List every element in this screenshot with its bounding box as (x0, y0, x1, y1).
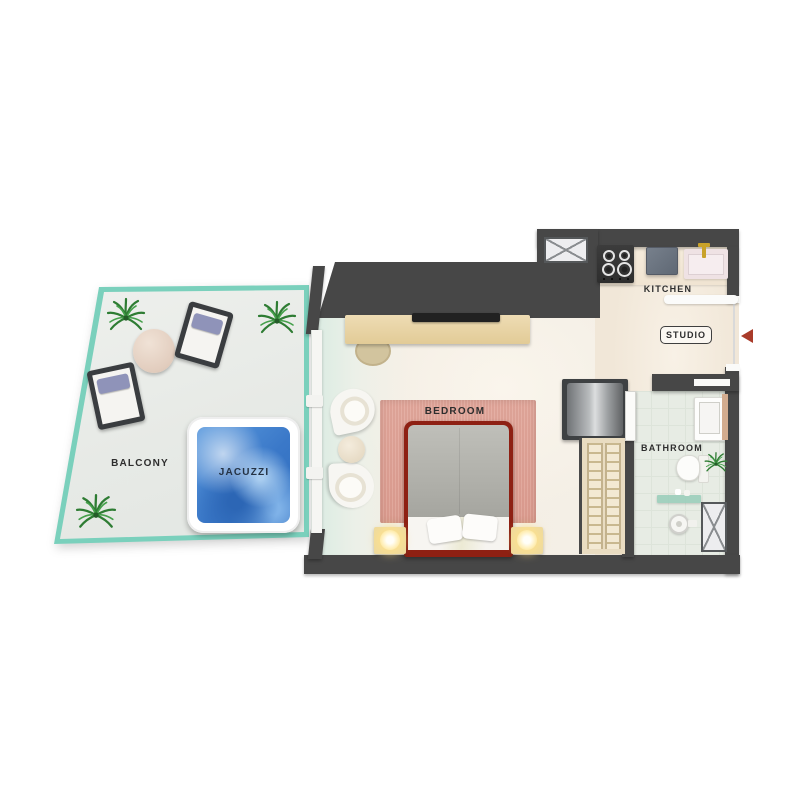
lamp-icon (380, 530, 400, 550)
wardrobe-rail (587, 443, 603, 549)
entry-door-leaf (733, 303, 735, 364)
chair-pillow (96, 373, 130, 394)
stove-knobs (603, 278, 605, 280)
bathroom-shelf (694, 379, 730, 386)
toiletry-bottles (675, 489, 681, 495)
bathroom-label: BATHROOM (635, 444, 709, 453)
shower-head-center (676, 521, 682, 527)
palm-plant-icon (106, 296, 146, 336)
wardrobe (579, 438, 625, 554)
nightstand (374, 527, 406, 554)
bed-duvet (408, 425, 509, 519)
kitchen-sink-icon (684, 249, 728, 279)
entrance-arrow-icon (741, 329, 753, 343)
kitchen-cabinet-bar (664, 295, 738, 304)
stove-burner (603, 250, 615, 262)
wall-bottom (304, 555, 740, 574)
vanity-side-panel (722, 394, 728, 440)
bathroom-door-leaf (625, 391, 636, 441)
fridge-icon (646, 247, 678, 275)
vanity-basin (699, 402, 720, 434)
entry-door-jamb (726, 364, 740, 371)
duvet-seam (459, 428, 460, 514)
studio-label: STUDIO (660, 326, 712, 344)
shower-head-icon (669, 514, 689, 534)
wall-right-upper (727, 247, 739, 302)
shower-handle (688, 520, 697, 527)
bed (404, 421, 513, 557)
pouf-table (338, 436, 365, 463)
faucet-icon (698, 243, 710, 247)
floor-plan: JACUZZI BALCONY KITCHEN STUDIO (0, 0, 800, 800)
toilet-icon (676, 455, 700, 481)
stove-burner (602, 263, 615, 276)
heater-tank (567, 383, 623, 436)
nightstand (511, 527, 543, 554)
stove-icon (597, 245, 634, 283)
window-mullion (306, 395, 323, 407)
sink-basin (688, 254, 724, 275)
bathroom-vanity-sink (694, 397, 725, 441)
palm-plant-icon (257, 299, 297, 339)
stove-burner (619, 250, 630, 261)
lamp-icon (517, 530, 537, 550)
balcony-table (133, 329, 175, 373)
service-shaft-icon (544, 237, 588, 263)
water-heater (562, 379, 628, 440)
bed-pillow (426, 514, 463, 544)
wall-bedroom-top (318, 262, 600, 318)
balcony-label: BALCONY (95, 459, 185, 469)
bedroom-label: BEDROOM (403, 407, 507, 417)
balcony-door-frame (311, 330, 322, 533)
chair-pillow (191, 313, 224, 336)
jacuzzi-label: JACUZZI (188, 468, 300, 478)
shower-glass-shelf (657, 495, 701, 503)
bed-pillow (462, 513, 498, 541)
stove-burner (617, 262, 632, 277)
palm-plant-icon (75, 492, 117, 534)
wardrobe-rail (605, 443, 621, 549)
service-shaft-icon (701, 502, 727, 552)
window-mullion (306, 467, 323, 479)
kitchen-label: KITCHEN (638, 285, 698, 294)
tv-icon (412, 313, 500, 322)
